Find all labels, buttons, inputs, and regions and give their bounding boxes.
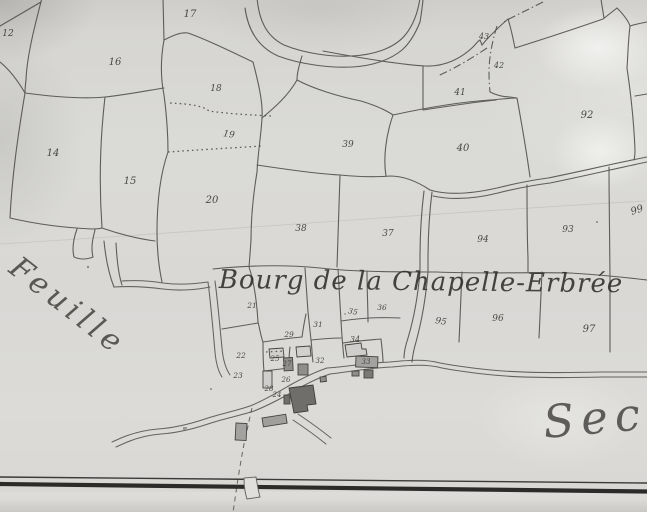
parcel-number: 16 [109, 57, 122, 68]
building [345, 343, 367, 357]
parcel-number: 41 [453, 88, 465, 98]
faint-survey-line [0, 201, 645, 244]
parcel-number: 42 [493, 61, 504, 70]
parcel-number: 12 [2, 29, 14, 39]
building [298, 364, 308, 375]
parcel-number: 32 [316, 357, 325, 365]
cadastral-map-sheet: 1216171819141520383739404142439299939495… [0, 0, 647, 512]
parcel-number: 93 [562, 225, 574, 235]
parcel-number: 34 [350, 335, 360, 344]
border-crossing-parcel [244, 477, 260, 499]
parcel-number: 94 [477, 235, 489, 245]
sheet-border [0, 477, 647, 492]
parcel-number: 36 [377, 303, 387, 312]
parcel-number: 40 [456, 143, 470, 154]
parcel-number: 24 [272, 391, 282, 399]
parcel-number: 29 [283, 330, 294, 339]
parcel-number: 96 [492, 314, 504, 324]
parcel-number: 43 [478, 32, 489, 41]
parcel-number: 33 [362, 358, 371, 366]
dashdot-boundaries [438, 2, 543, 92]
parcel-number: 25 [270, 355, 280, 363]
parcel-number: 20 [205, 195, 219, 206]
ink-specks [87, 221, 598, 390]
parcel-number: 22 [235, 351, 246, 360]
building [296, 346, 311, 357]
parcel-number: 31 [313, 320, 323, 329]
parcel-number: 38 [295, 224, 307, 234]
parcel-number: 17 [184, 9, 197, 20]
parcel-number: 27 [282, 360, 292, 368]
parcel-number: 97 [583, 324, 596, 335]
dotted-boundaries [168, 103, 284, 352]
building [352, 371, 359, 376]
building [320, 376, 326, 382]
script-label-bourg-title: Bourg de la Chapelle-Erbrée [219, 265, 624, 299]
parcel-number: 92 [581, 110, 594, 121]
parcel-number: 95 [434, 316, 447, 328]
parcel-number: 14 [47, 148, 60, 159]
parcel-number: 19 [222, 129, 235, 141]
parcel-number: 21 [246, 301, 257, 310]
parcel-number: 26 [281, 376, 291, 384]
parcel-number: 18 [210, 84, 222, 94]
parcel-number: 39 [342, 140, 354, 150]
script-label-section: Sect [541, 385, 647, 449]
building [262, 414, 287, 427]
building [235, 423, 247, 441]
parcel-number: 37 [382, 229, 394, 239]
parcel-number: 15 [124, 176, 137, 187]
church-building [289, 385, 316, 413]
building [284, 395, 290, 404]
parcel-number: 99 [629, 203, 645, 218]
parcel-number: 35 [347, 306, 358, 317]
building [183, 427, 187, 430]
parcel-number: 23 [232, 371, 243, 380]
building [364, 370, 373, 378]
